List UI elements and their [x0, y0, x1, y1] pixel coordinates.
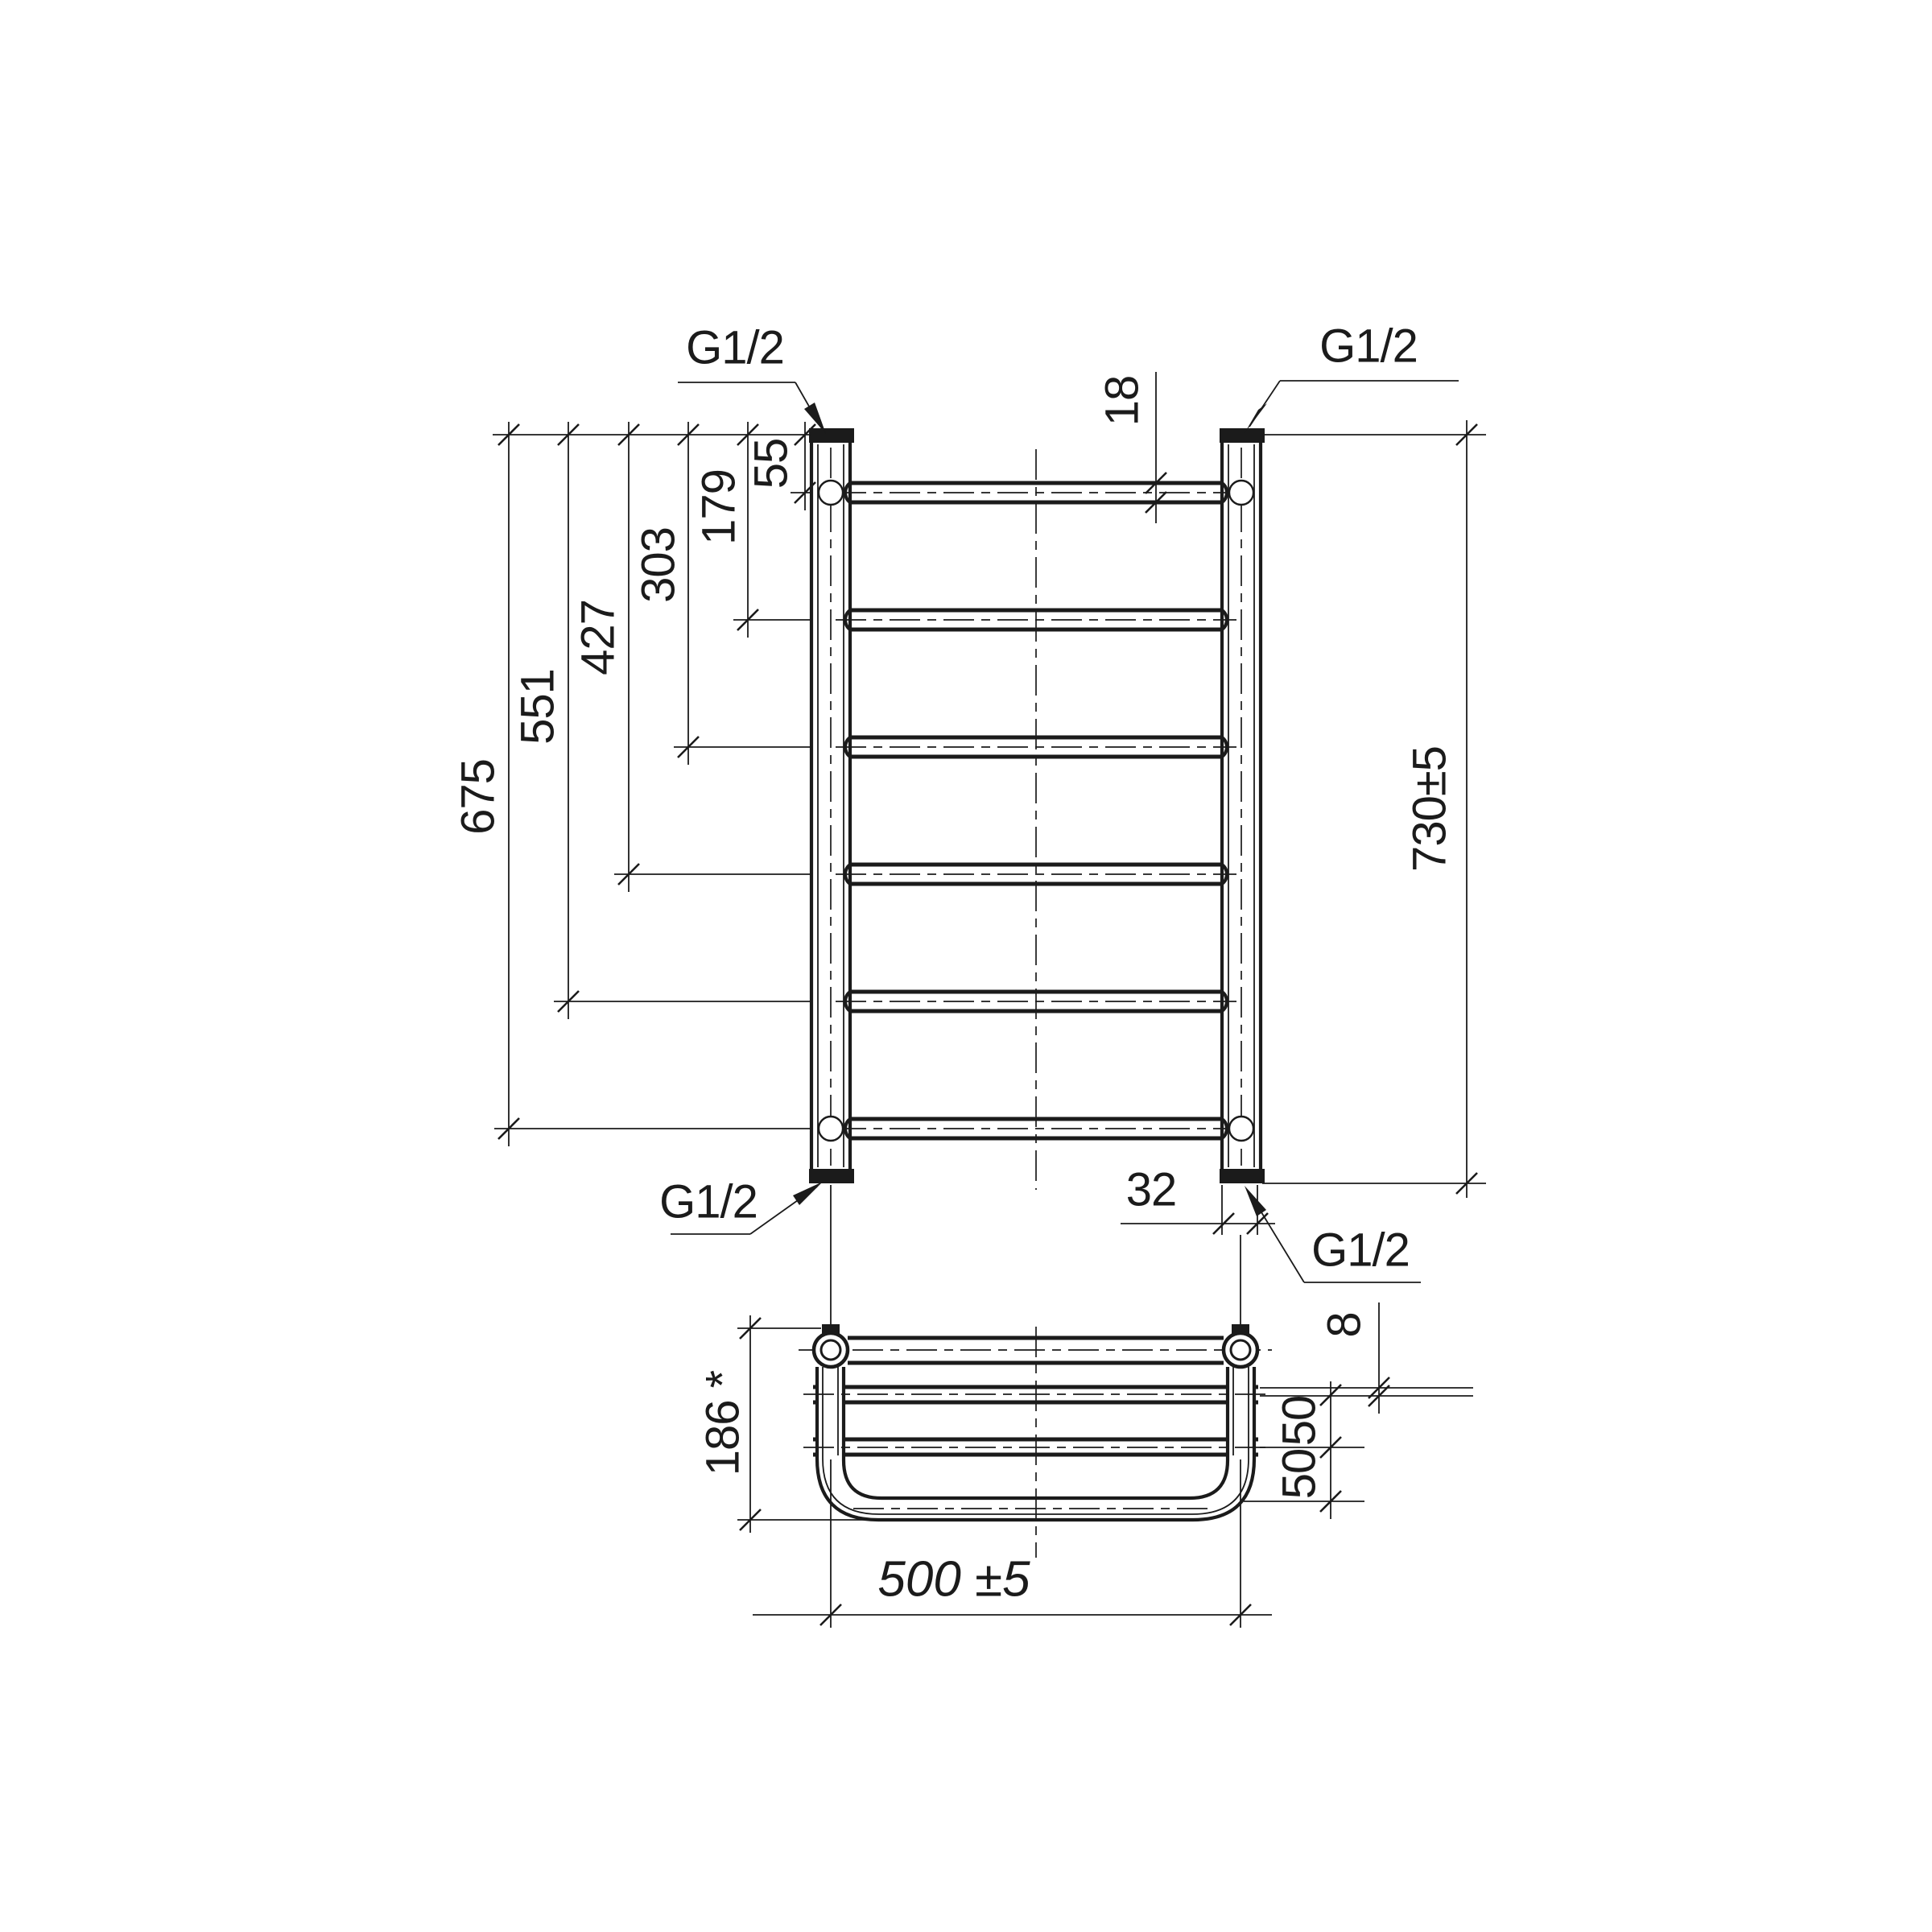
dim-label-675: 675 — [452, 759, 505, 835]
callout-g12-bottom-right: G1/2 — [1245, 1186, 1421, 1282]
left-post-section — [814, 1324, 848, 1367]
dimension-overall-height: 730±5 — [1262, 420, 1486, 1198]
dim-label-179: 179 — [693, 469, 745, 545]
front-view — [809, 428, 1265, 1190]
callout-g12-top-right: G1/2 — [1245, 320, 1459, 434]
dim-label-427: 427 — [572, 600, 625, 675]
right-post — [1220, 428, 1265, 1183]
right-post-section — [1224, 1324, 1257, 1367]
joint-circle — [1229, 1117, 1253, 1141]
right-post-top-fitting — [1220, 428, 1265, 443]
g12-label: G1/2 — [686, 322, 784, 374]
callout-g12-top-left: G1/2 — [678, 322, 826, 435]
joint-circle — [1229, 481, 1253, 505]
dim-label-18: 18 — [1096, 376, 1149, 427]
callout-g12-bottom-left: G1/2 — [659, 1176, 823, 1235]
right-post-bottom-fitting — [1220, 1169, 1265, 1183]
dim-label-55: 55 — [745, 439, 798, 489]
dim-label-186: 186 * — [697, 1370, 749, 1476]
g12-label: G1/2 — [1319, 320, 1418, 373]
dim-label-32: 32 — [1126, 1164, 1177, 1216]
joint-circle — [819, 481, 843, 505]
joint-circle — [819, 1117, 843, 1141]
dimension-shelf-spacing: 50 50 — [1244, 1381, 1364, 1519]
dim-label-551: 551 — [512, 669, 564, 745]
left-post-bottom-fitting — [809, 1169, 854, 1183]
left-post-top-fitting — [809, 428, 854, 443]
left-post — [809, 428, 854, 1183]
dim-label-50-upper: 50 — [1274, 1396, 1326, 1447]
dim-label-8: 8 — [1319, 1312, 1371, 1337]
dim-label-730: 730±5 — [1404, 746, 1456, 872]
dim-label-50-lower: 50 — [1274, 1449, 1326, 1500]
dim-label-303: 303 — [633, 527, 685, 603]
dim-label-500: 500 ±5 — [877, 1552, 1030, 1608]
towel-rail-technical-drawing: 675 551 427 303 179 55 730±5 18 32 G1/2 — [0, 0, 1932, 1932]
drawing-sheet: 675 551 427 303 179 55 730±5 18 32 G1/2 — [0, 0, 1932, 1932]
g12-label: G1/2 — [1311, 1224, 1410, 1277]
leader-arrow — [1245, 1186, 1266, 1216]
dimension-stack-left: 675 551 427 303 179 55 — [452, 422, 816, 1146]
g12-label: G1/2 — [659, 1176, 758, 1228]
leader-arrow — [793, 1182, 823, 1205]
bottom-view — [799, 1185, 1272, 1628]
